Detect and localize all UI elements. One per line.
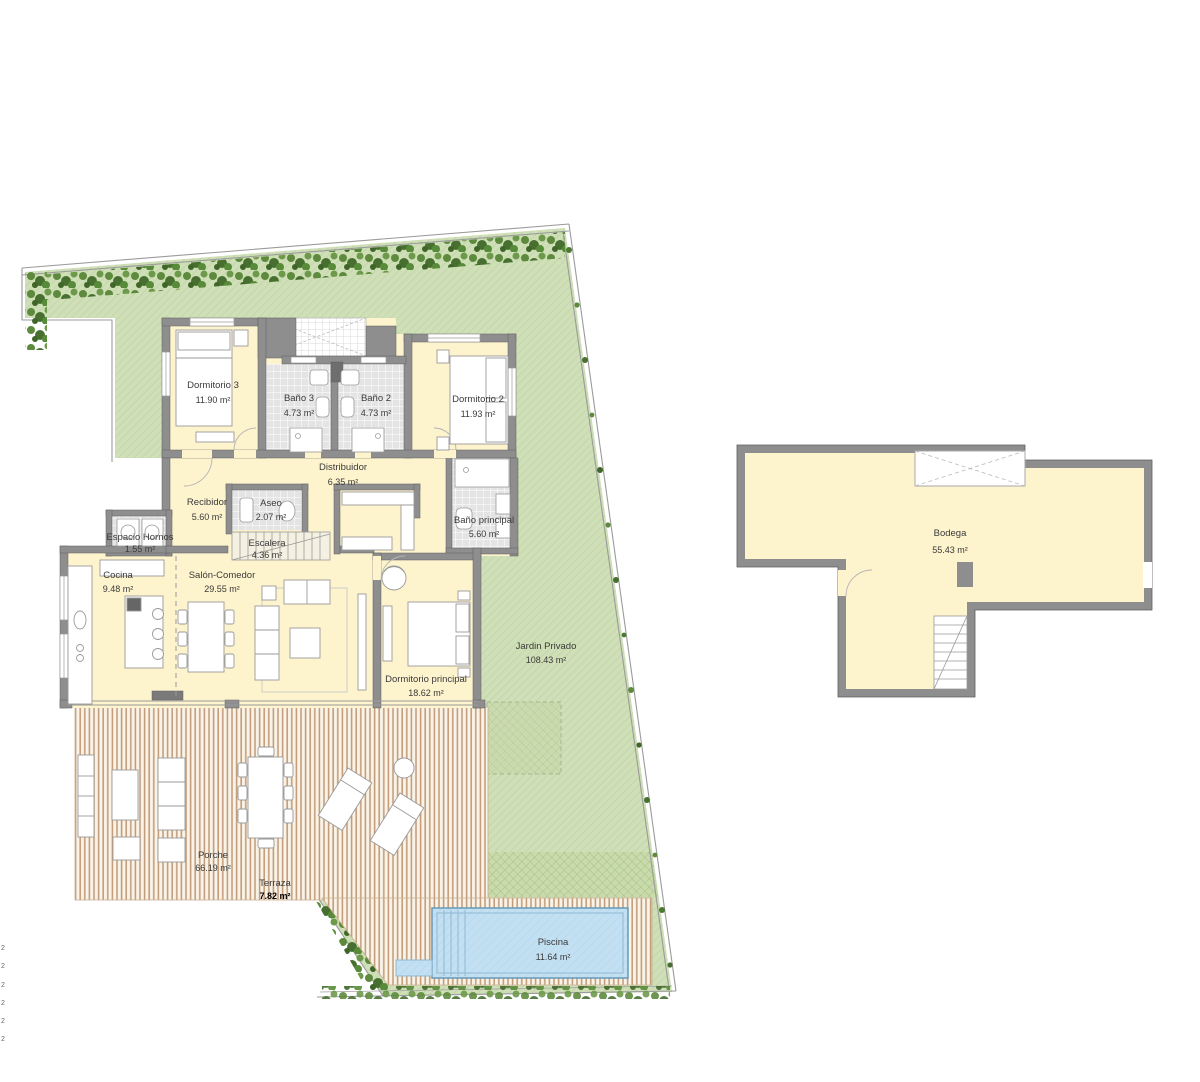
bodega-plan [737,445,1152,697]
floorplan-drawing: Dormitorio 3 11.90 m² Baño 3 4.73 m² Bañ… [0,0,1200,1082]
bodega-stairs [934,616,967,689]
label-dorm-principal-name: Dormitorio principal [385,674,467,685]
label-hornos-area: 1.55 m² [125,544,156,554]
porch [75,707,488,900]
bodega-skylight [915,451,1025,486]
label-dormitorio3-name: Dormitorio 3 [187,380,239,391]
label-bano2-area: 4.73 m² [361,408,392,418]
label-bano-principal-area: 5.60 m² [469,529,500,539]
pool-side-box [396,960,432,976]
floorplan-page: Dormitorio 3 11.90 m² Baño 3 4.73 m² Bañ… [0,0,1200,1082]
bottom-shrub-row [322,986,670,999]
label-bano3-name: Baño 3 [284,393,314,404]
label-recibidor-area: 5.60 m² [192,512,223,522]
label-dormitorio2-name: Dormitorio 2 [452,394,504,405]
label-bodega-area: 55.43 m² [932,545,968,555]
label-recibidor-name: Recibidor [187,497,227,508]
edge-mark-1: 2 [1,963,5,970]
dining-set [178,602,234,672]
label-dorm-principal-area: 18.62 m² [408,688,444,698]
left-hedge-clump [25,272,47,350]
garden-dashed-plot [487,702,561,774]
garden-white-notch [100,458,162,510]
edge-mark-4: 2 [1,1018,5,1025]
label-bano3-area: 4.73 m² [284,408,315,418]
label-cocina-area: 9.48 m² [103,584,134,594]
edge-mark-0: 2 [1,945,5,952]
garden-crosshatch-patch [487,852,658,897]
label-salon-name: Salón-Comedor [189,570,256,581]
label-distribuidor-name: Distribuidor [319,462,367,473]
label-salon-area: 29.55 m² [204,584,240,594]
label-terraza-area: 7.82 m² [259,891,290,901]
bodega-wall-notch [1143,562,1152,588]
pool [432,908,628,978]
label-aseo-name: Aseo [260,498,282,509]
label-distribuidor-area: 6.35 m² [328,477,359,487]
label-escalera-area: 4.36 m² [252,550,283,560]
bodega-column [957,562,973,587]
label-bano2-name: Baño 2 [361,393,391,404]
edge-mark-3: 2 [1,1000,5,1007]
label-bano-principal-name: Baño principal [454,515,514,526]
label-cocina-name: Cocina [103,570,133,581]
edge-mark-5: 2 [1,1036,5,1043]
label-jardin-area: 108.43 m² [526,655,567,665]
label-escalera-name: Escalera [249,538,287,549]
label-piscina-area: 11.64 m² [536,952,571,962]
label-dormitorio2-area: 11.93 m² [461,409,496,419]
edge-marks: 2 2 2 2 2 2 [1,945,5,1043]
label-jardin-name: Jardin Privado [516,641,577,652]
label-bodega-name: Bodega [934,528,967,539]
label-aseo-area: 2.07 m² [256,512,287,522]
label-porche-area: 66.19 m² [195,863,231,873]
label-piscina-name: Piscina [538,937,569,948]
edge-mark-2: 2 [1,982,5,989]
label-hornos-name: Espacio Hornos [106,532,173,543]
label-dormitorio3-area: 11.90 m² [196,395,231,405]
label-porche-name: Porche [198,850,228,861]
label-terraza-name: Terraza [259,878,291,889]
